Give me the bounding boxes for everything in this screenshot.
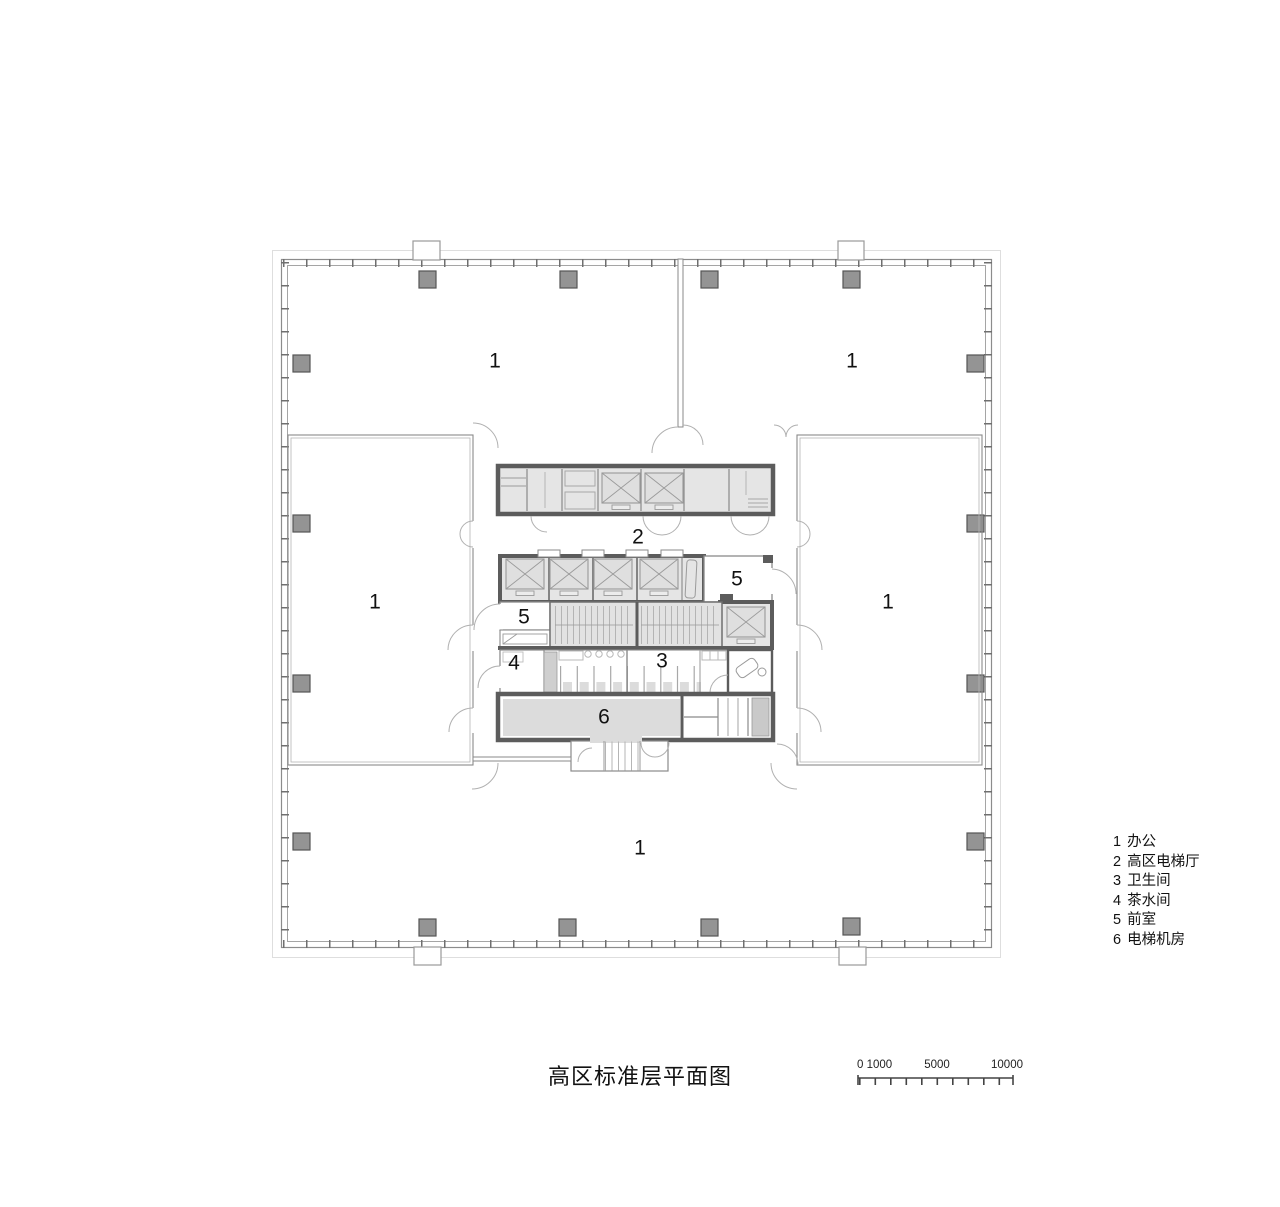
legend-item-office: 1办公 bbox=[1113, 833, 1200, 853]
legend-item-front-room: 5前室 bbox=[1113, 911, 1200, 931]
room-label-tea-room: 4 bbox=[508, 653, 520, 674]
room-label-front-room-right: 5 bbox=[731, 569, 743, 590]
room-label-machine-room: 6 bbox=[598, 707, 610, 728]
legend-num: 6 bbox=[1113, 931, 1121, 951]
room-label-office-top-left: 1 bbox=[489, 351, 501, 372]
fire-elevator bbox=[720, 602, 772, 648]
front-room-right bbox=[704, 555, 796, 602]
legend-num: 4 bbox=[1113, 892, 1121, 912]
floor-plan-drawing bbox=[0, 0, 1280, 1207]
legend-item-washroom: 3卫生间 bbox=[1113, 872, 1200, 892]
scale-label-mid: 5000 bbox=[924, 1059, 950, 1071]
floor-plan-page: 1 1 1 1 1 2 5 5 4 3 6 高区标准层平面图 1办公 2高区电梯… bbox=[0, 0, 1280, 1207]
louver-room bbox=[500, 630, 550, 648]
legend-item-elevator-hall: 2高区电梯厅 bbox=[1113, 853, 1200, 873]
exit-vestibule bbox=[571, 735, 669, 771]
core-service-band bbox=[498, 466, 773, 514]
right-office-partition bbox=[774, 425, 982, 765]
legend-item-machine-room: 6电梯机房 bbox=[1113, 931, 1200, 951]
duct-shaft bbox=[544, 652, 557, 692]
legend-num: 2 bbox=[1113, 853, 1121, 873]
machine-room-floor bbox=[503, 699, 680, 736]
legend-label: 办公 bbox=[1127, 834, 1156, 850]
room-label-office-mid-left: 1 bbox=[369, 592, 381, 613]
room-label-front-room-left: 5 bbox=[518, 607, 530, 628]
top-divider-wall bbox=[652, 259, 703, 453]
legend-label: 茶水间 bbox=[1127, 893, 1171, 909]
legend-num: 5 bbox=[1113, 911, 1121, 931]
drawing-title: 高区标准层平面图 bbox=[548, 1059, 732, 1091]
room-label-office-top-right: 1 bbox=[846, 351, 858, 372]
room-label-office-mid-right: 1 bbox=[882, 592, 894, 613]
washroom-band bbox=[478, 650, 772, 694]
room-label-elevator-hall: 2 bbox=[632, 527, 644, 548]
legend-num: 1 bbox=[1113, 833, 1121, 853]
room-label-office-bottom: 1 bbox=[634, 838, 646, 859]
scale-bar bbox=[858, 1075, 1014, 1085]
legend-label: 高区电梯厅 bbox=[1127, 854, 1200, 870]
core-elevator-bank bbox=[500, 550, 704, 602]
front-room-left bbox=[474, 602, 550, 630]
legend-num: 3 bbox=[1113, 872, 1121, 892]
room-label-washroom: 3 bbox=[656, 651, 668, 672]
legend-label: 电梯机房 bbox=[1127, 932, 1185, 948]
legend-label: 卫生间 bbox=[1127, 873, 1171, 889]
legend: 1办公 2高区电梯厅 3卫生间 4茶水间 5前室 6电梯机房 bbox=[1113, 833, 1200, 950]
scale-label-end: 10000 bbox=[991, 1059, 1023, 1071]
left-office-partition bbox=[288, 423, 498, 765]
scale-label-start: 0 1000 bbox=[857, 1059, 892, 1071]
legend-item-tea-room: 4茶水间 bbox=[1113, 892, 1200, 912]
elevator-hall-doors bbox=[531, 516, 769, 535]
legend-label: 前室 bbox=[1127, 912, 1156, 928]
machine-room-band bbox=[498, 694, 773, 740]
